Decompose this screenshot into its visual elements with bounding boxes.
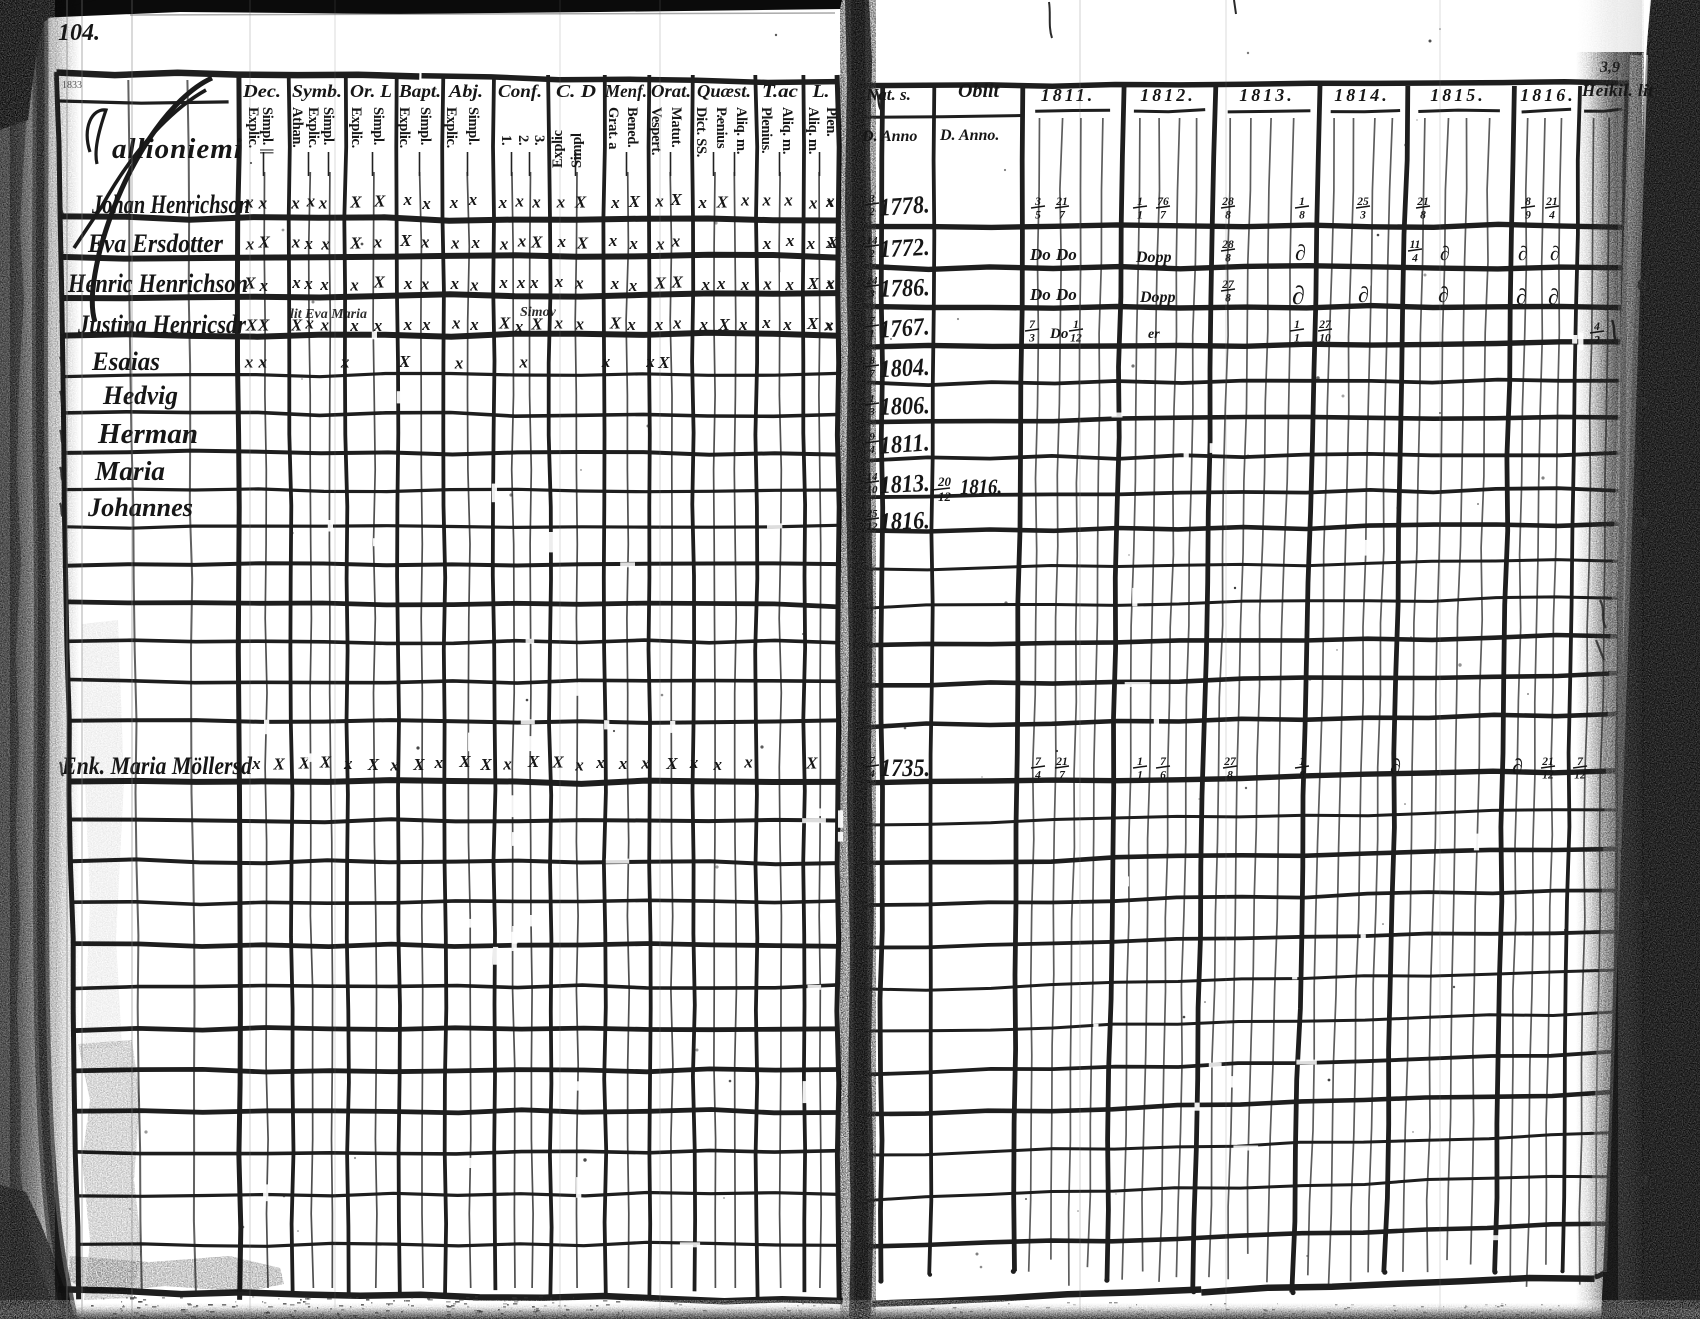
svg-text:∂: ∂ — [1512, 754, 1523, 779]
svg-text:1: 1 — [1294, 333, 1300, 345]
svg-text:x: x — [601, 352, 611, 371]
svg-text:x: x — [784, 275, 794, 294]
svg-text:X: X — [806, 314, 819, 333]
svg-text:x: x — [595, 753, 605, 772]
svg-text:∂: ∂ — [1292, 281, 1305, 310]
svg-text:3: 3 — [868, 288, 875, 300]
svg-text:Matut.: Matut. — [668, 107, 684, 147]
svg-text:Enk. Maria Möllersd: Enk. Maria Möllersd — [61, 753, 252, 780]
svg-text:Simpl: Simpl — [569, 133, 585, 168]
svg-text:10: 10 — [1319, 333, 1331, 345]
svg-text:x: x — [645, 352, 655, 371]
svg-text:x: x — [303, 274, 313, 293]
svg-text:x: x — [291, 232, 301, 251]
svg-text:1767.: 1767. — [879, 313, 931, 343]
svg-text:Plenius.: Plenius. — [758, 107, 774, 153]
svg-text:Or. L: Or. L — [350, 81, 392, 101]
svg-text:X: X — [671, 273, 684, 292]
svg-text:x: x — [740, 190, 750, 209]
svg-text:12: 12 — [938, 489, 952, 504]
svg-text:Explic.: Explic. — [245, 107, 261, 148]
svg-text:X: X — [498, 314, 511, 333]
svg-text:X: X — [399, 231, 412, 250]
svg-text:Johannes: Johannes — [87, 493, 193, 522]
svg-text:1813.: 1813. — [879, 470, 930, 500]
svg-text:Grat. a: Grat. a — [605, 107, 621, 150]
svg-text:1812.: 1812. — [1140, 85, 1196, 105]
svg-text:x: x — [514, 191, 524, 210]
svg-text:Obiit: Obiit — [958, 80, 1001, 102]
svg-text:1735.: 1735. — [880, 755, 930, 782]
svg-text:Simov: Simov — [520, 305, 557, 320]
svg-text:X: X — [257, 315, 270, 334]
svg-text:Abj.: Abj. — [448, 81, 483, 101]
svg-text:X: X — [412, 755, 425, 774]
svg-text:X: X — [551, 753, 564, 772]
svg-text:x: x — [258, 194, 268, 213]
svg-text:x: x — [451, 313, 461, 332]
svg-text:Explic.: Explic. — [396, 107, 412, 148]
svg-text:x: x — [291, 273, 301, 292]
svg-text:8: 8 — [1299, 770, 1305, 782]
svg-text:x: x — [825, 277, 834, 293]
svg-text:X: X — [609, 313, 622, 332]
svg-text:Menf.: Menf. — [604, 81, 647, 101]
svg-text:6: 6 — [1160, 770, 1166, 782]
svg-text:Bened.: Bened. — [624, 107, 640, 148]
svg-text:Maria: Maria — [94, 456, 165, 486]
svg-text:x: x — [469, 275, 479, 294]
svg-text:∂: ∂ — [1550, 243, 1560, 265]
svg-text:C. D: C. D — [556, 81, 596, 101]
svg-text:X: X — [349, 193, 362, 212]
svg-text:x: x — [626, 315, 636, 334]
svg-text:Dopp: Dopp — [1135, 249, 1172, 266]
svg-text:Johan Henrichson: Johan Henrichson — [91, 190, 250, 219]
svg-text:x: x — [554, 272, 564, 291]
svg-text:P.enius: P.enius — [713, 107, 729, 149]
svg-text:x: x — [628, 234, 638, 253]
svg-text:x: x — [574, 756, 584, 775]
svg-text:X: X — [576, 233, 589, 252]
svg-text:3.: 3. — [531, 135, 547, 145]
svg-text:∂: ∂ — [1390, 754, 1401, 779]
svg-text:∂: ∂ — [1358, 282, 1369, 307]
svg-text:Dopp: Dopp — [1139, 289, 1176, 306]
svg-text:1816.: 1816. — [960, 474, 1002, 499]
svg-text:3,9: 3,9 — [1599, 59, 1620, 76]
svg-text:x: x — [469, 315, 479, 334]
svg-text:Conf.: Conf. — [498, 81, 542, 101]
svg-text:x: x — [434, 753, 444, 772]
svg-text:x: x — [499, 235, 509, 254]
svg-text:x: x — [672, 314, 682, 333]
svg-text:1786.: 1786. — [879, 274, 930, 303]
svg-text:Simpl.: Simpl. — [465, 107, 481, 145]
svg-text:x: x — [699, 315, 709, 334]
svg-text:2: 2 — [868, 248, 875, 260]
svg-text:∂: ∂ — [1548, 284, 1559, 309]
svg-text:Aliq. m.: Aliq. m. — [733, 107, 749, 154]
svg-text:x: x — [713, 755, 723, 774]
svg-text:7: 7 — [869, 368, 875, 380]
svg-text:Hedvig: Hedvig — [102, 381, 178, 410]
svg-text:x: x — [689, 753, 699, 772]
svg-text:x: x — [373, 233, 383, 252]
svg-text:X: X — [458, 752, 471, 771]
svg-text:x: x — [628, 276, 638, 295]
svg-text:104.: 104. — [58, 20, 100, 46]
svg-text:12: 12 — [1574, 770, 1586, 782]
svg-text:X: X — [716, 193, 729, 212]
svg-text:Quæst.: Quæst. — [697, 81, 751, 101]
svg-text:Herman: Herman — [97, 419, 198, 450]
svg-text:x: x — [610, 274, 620, 293]
svg-text:Simpl.: Simpl. — [370, 107, 386, 145]
svg-text:x: x — [618, 754, 628, 773]
svg-text:2: 2 — [1593, 335, 1600, 347]
svg-text:Aliq. m.: Aliq. m. — [805, 107, 821, 154]
svg-text:1: 1 — [1137, 770, 1143, 782]
svg-text:x: x — [420, 275, 430, 294]
svg-text:x: x — [557, 232, 567, 251]
svg-text:X: X — [479, 755, 492, 774]
svg-text:3: 3 — [868, 406, 875, 418]
svg-text:x: x — [343, 754, 353, 773]
svg-text:x: x — [531, 192, 541, 211]
svg-text:12: 12 — [867, 521, 879, 533]
svg-text:x: x — [259, 276, 269, 295]
svg-text:x: x — [450, 234, 460, 253]
svg-text:x: x — [471, 233, 481, 252]
svg-text:x: x — [782, 315, 792, 334]
svg-text:x: x — [318, 194, 328, 213]
svg-text:5: 5 — [1035, 210, 1041, 222]
svg-text:X: X — [319, 752, 332, 771]
svg-text:1816.: 1816. — [1520, 85, 1576, 105]
svg-text:x: x — [389, 756, 399, 775]
svg-text:1814.: 1814. — [1334, 85, 1390, 105]
svg-text:x: x — [783, 191, 793, 210]
svg-text:x: x — [517, 232, 527, 251]
svg-text:X: X — [367, 755, 380, 774]
svg-text:1772.: 1772. — [879, 234, 930, 264]
svg-text:x: x — [743, 753, 753, 772]
svg-text:x: x — [403, 274, 413, 293]
svg-text:X: X — [718, 315, 731, 334]
svg-text:x: x — [762, 275, 772, 294]
svg-text:x: x — [808, 194, 818, 213]
svg-text:X: X — [258, 232, 271, 251]
svg-text:X: X — [527, 752, 540, 771]
svg-text:Plen.: Plen. — [823, 107, 839, 137]
svg-text:x: x — [290, 194, 300, 213]
svg-text:∂: ∂ — [1518, 243, 1528, 265]
svg-text:1778.: 1778. — [879, 191, 931, 221]
svg-text:x: x — [640, 754, 650, 773]
svg-text:3: 3 — [1359, 210, 1366, 222]
svg-text:X: X — [805, 754, 818, 773]
svg-text:1.: 1. — [498, 135, 514, 145]
svg-text:Do: Do — [1049, 326, 1068, 342]
svg-text:Henric Henrichson: Henric Henrichson — [67, 269, 248, 298]
svg-text:x: x — [671, 232, 681, 251]
svg-text:x: x — [574, 273, 584, 292]
svg-text:Do: Do — [1055, 245, 1077, 264]
svg-text:x: x — [498, 193, 508, 212]
svg-text:D. Anno: D. Anno — [861, 128, 917, 145]
svg-text:x: x — [654, 315, 664, 334]
svg-text:x: x — [244, 353, 254, 372]
svg-text:20: 20 — [937, 474, 952, 489]
svg-text:Dec.: Dec. — [242, 81, 281, 101]
svg-text:x: x — [449, 193, 459, 212]
svg-text:Do: Do — [1029, 285, 1051, 304]
svg-text:x: x — [610, 193, 620, 212]
svg-text:x: x — [762, 234, 772, 253]
svg-text:X: X — [373, 273, 386, 292]
svg-text:er: er — [1148, 327, 1160, 342]
svg-text:x: x — [608, 231, 618, 250]
svg-text:Do: Do — [1055, 285, 1077, 304]
svg-text:Eva Ersdotter: Eva Ersdotter — [87, 229, 224, 258]
svg-text:x: x — [258, 353, 268, 372]
svg-text:T.ac: T.ac — [762, 81, 798, 101]
svg-text:x: x — [454, 353, 464, 372]
svg-text:Do: Do — [1029, 245, 1051, 264]
svg-text:x: x — [244, 193, 254, 212]
svg-text:L.: L. — [811, 81, 829, 101]
svg-text:∂: ∂ — [1295, 240, 1306, 265]
svg-text:x: x — [654, 191, 664, 210]
svg-text:x: x — [502, 755, 512, 774]
svg-text:x: x — [825, 318, 834, 334]
svg-text:x: x — [697, 193, 707, 212]
svg-text:Heikil. lit: Heikil. lit — [1581, 81, 1654, 100]
svg-text:X: X — [574, 193, 587, 212]
svg-text:4: 4 — [1548, 210, 1555, 222]
svg-text:1: 1 — [869, 328, 875, 340]
svg-text:x: x — [825, 195, 834, 211]
svg-text:X: X — [245, 316, 258, 335]
svg-text:x: x — [468, 190, 478, 209]
svg-text:x: x — [403, 315, 413, 334]
svg-text:x: x — [340, 353, 350, 372]
svg-text:X: X — [628, 192, 641, 211]
svg-text:2: 2 — [868, 206, 875, 218]
svg-text:x: x — [306, 192, 316, 211]
svg-text:x: x — [716, 274, 726, 293]
svg-text:Bapt.: Bapt. — [398, 81, 441, 101]
svg-text:Simpl.: Simpl. — [417, 107, 433, 145]
svg-text:∂: ∂ — [1440, 243, 1450, 265]
svg-text:X: X — [373, 192, 386, 211]
svg-text:12: 12 — [1542, 770, 1554, 782]
svg-text:x: x — [319, 275, 329, 294]
svg-text:1811.: 1811. — [879, 429, 931, 459]
svg-text:x: x — [825, 236, 834, 252]
svg-text:8: 8 — [1227, 770, 1233, 782]
svg-text:1816.: 1816. — [879, 507, 930, 536]
svg-text:Orat.: Orat. — [651, 81, 691, 101]
svg-text:X: X — [657, 353, 670, 372]
svg-text:x: x — [701, 275, 711, 294]
svg-text:X: X — [807, 274, 820, 293]
svg-text:1811.: 1811. — [1041, 85, 1096, 105]
svg-text:x: x — [420, 232, 430, 251]
svg-text:x: x — [575, 315, 585, 334]
svg-text:1833: 1833 — [62, 80, 82, 91]
svg-text:Explic.: Explic. — [443, 107, 459, 148]
svg-text:Explic: Explic — [550, 129, 566, 168]
svg-text:1: 1 — [1137, 210, 1143, 222]
svg-text:x: x — [518, 353, 528, 372]
svg-text:2.: 2. — [515, 135, 531, 145]
svg-text:x: x — [516, 273, 526, 292]
svg-text:x: x — [303, 234, 313, 253]
svg-text:x: x — [498, 273, 508, 292]
svg-text:3: 3 — [1028, 333, 1035, 345]
svg-text:Nat. s.: Nat. s. — [865, 85, 911, 104]
svg-text:Justina Henricsdr: Justina Henricsdr — [77, 310, 247, 339]
svg-text:X: X — [272, 754, 285, 773]
svg-text:Simpl.: Simpl. — [320, 107, 336, 145]
svg-text:Aliq. m.: Aliq. m. — [779, 107, 795, 154]
svg-text:x: x — [320, 235, 330, 254]
svg-text:1813.: 1813. — [1239, 85, 1295, 105]
svg-text:4: 4 — [1411, 253, 1418, 265]
svg-text:X: X — [349, 233, 362, 252]
svg-text:x: x — [738, 315, 748, 334]
svg-text:Simpl. ||: Simpl. || — [259, 107, 275, 154]
svg-text:x: x — [740, 275, 750, 294]
svg-text:x: x — [785, 231, 795, 250]
svg-text:X: X — [670, 190, 683, 209]
svg-text:Explic.: Explic. — [348, 107, 364, 148]
svg-text:Esaias: Esaias — [91, 347, 160, 376]
svg-text:X: X — [398, 352, 411, 371]
svg-text:1815.: 1815. — [1430, 85, 1486, 105]
svg-text:1804.: 1804. — [879, 354, 930, 384]
svg-text:∂: ∂ — [1516, 284, 1527, 309]
svg-text:x: x — [421, 315, 431, 334]
svg-text:x: x — [349, 276, 359, 295]
svg-text:Dict. SS.: Dict. SS. — [693, 107, 709, 157]
svg-text:Explic.: Explic. — [305, 107, 321, 148]
svg-text:X: X — [665, 754, 678, 773]
svg-text:10: 10 — [867, 484, 879, 496]
svg-text:lit Eva Maria: lit Eva Maria — [290, 307, 367, 322]
svg-text:x: x — [403, 190, 413, 209]
svg-text:4: 4 — [1034, 770, 1041, 782]
svg-text:8: 8 — [1420, 210, 1426, 222]
svg-text:x: x — [450, 274, 460, 293]
svg-text:Athan.: Athan. — [289, 107, 305, 148]
svg-text:9: 9 — [1525, 210, 1531, 222]
svg-text:x: x — [806, 234, 816, 253]
svg-text:4: 4 — [868, 768, 875, 780]
svg-text:x: x — [251, 754, 261, 773]
svg-text:x: x — [762, 191, 772, 210]
svg-text:x: x — [761, 313, 771, 332]
svg-text:1806.: 1806. — [879, 392, 930, 421]
svg-text:x: x — [529, 273, 539, 292]
svg-text:D. Anno.: D. Anno. — [939, 127, 999, 144]
svg-text:x: x — [421, 194, 431, 213]
svg-text:X: X — [530, 232, 543, 251]
svg-text:8: 8 — [1299, 210, 1305, 222]
svg-text:4: 4 — [868, 444, 875, 456]
svg-text:Vespert.: Vespert. — [648, 107, 664, 155]
